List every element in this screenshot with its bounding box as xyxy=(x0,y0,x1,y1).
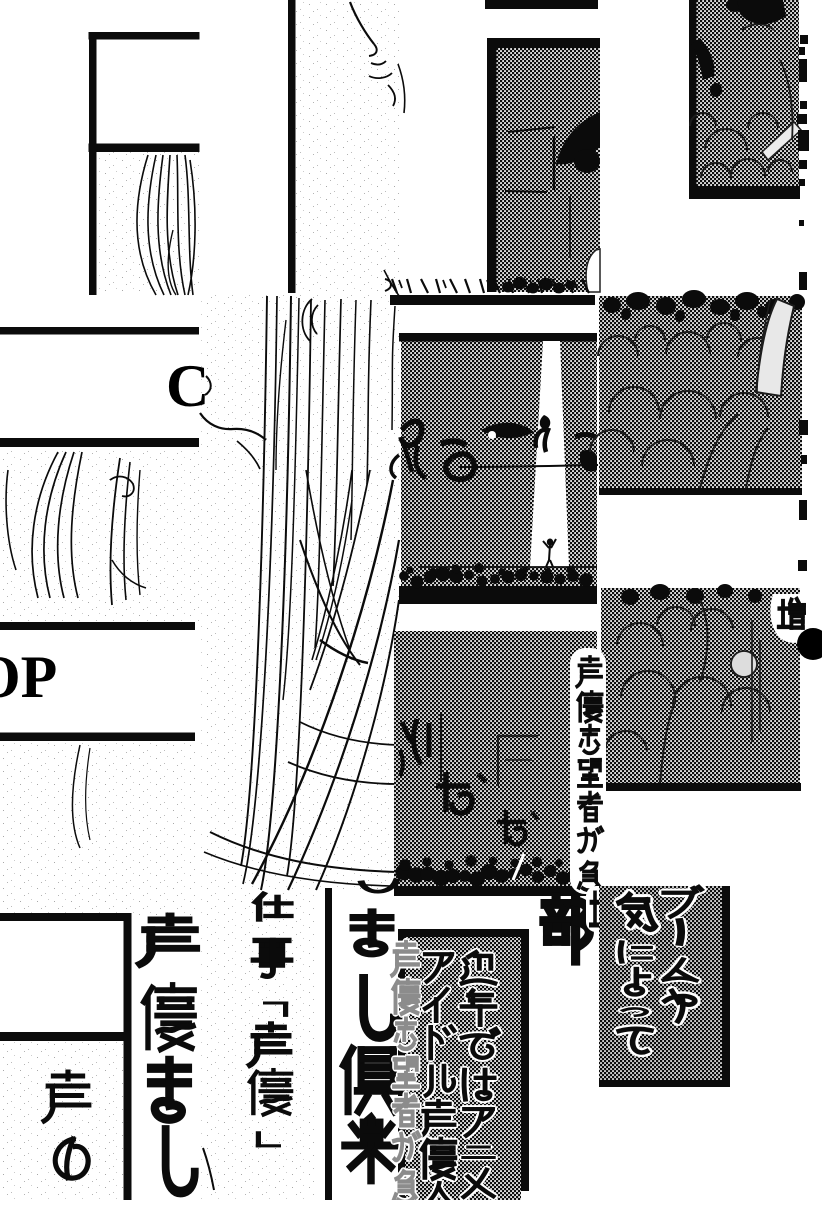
svg-text:C: C xyxy=(166,353,209,419)
svg-text:OP: OP xyxy=(0,644,57,710)
